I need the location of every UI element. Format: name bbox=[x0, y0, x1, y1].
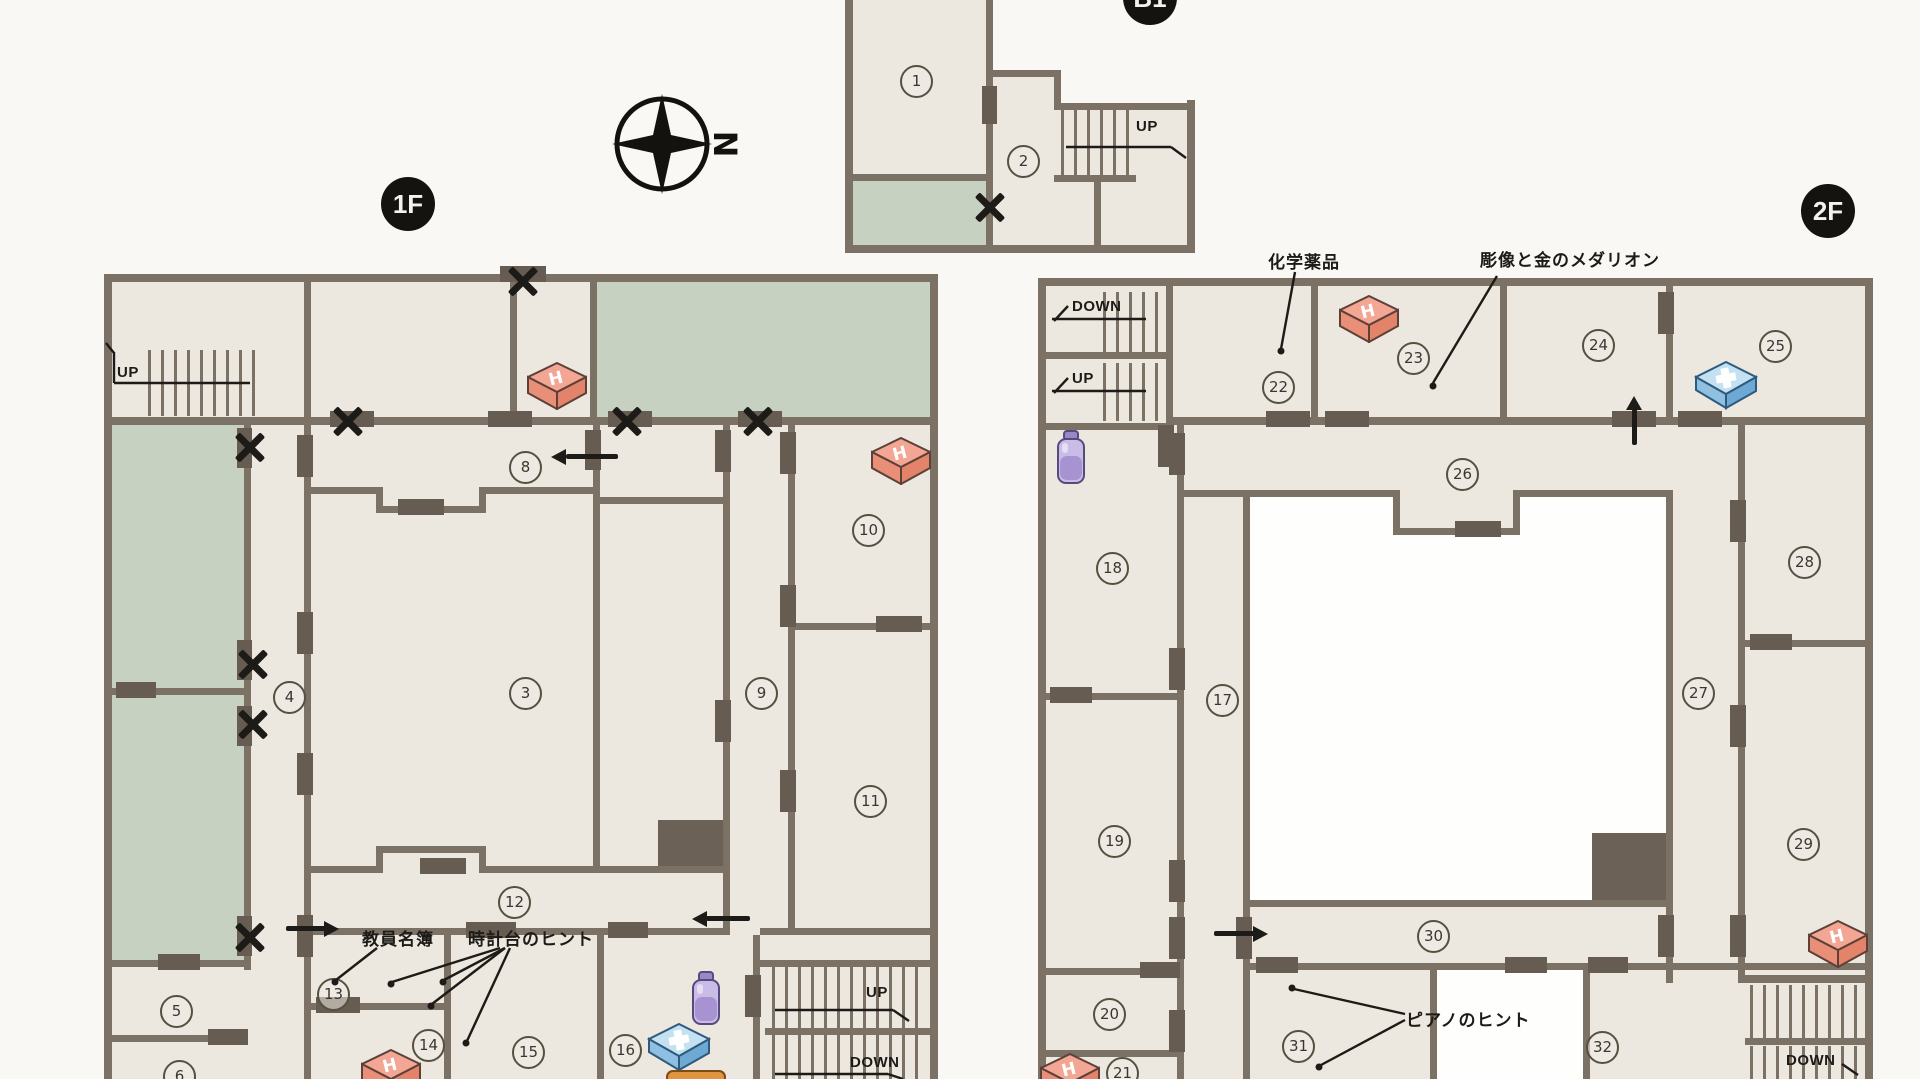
door-marker bbox=[1050, 687, 1092, 703]
arrow-shaft bbox=[706, 916, 750, 921]
door-marker bbox=[715, 430, 731, 472]
blocked-door-x-icon bbox=[741, 404, 775, 438]
door-marker bbox=[297, 435, 313, 477]
room-number-19: 19 bbox=[1098, 825, 1131, 858]
arrow-up-icon bbox=[1626, 396, 1642, 410]
wall bbox=[1054, 103, 1195, 110]
room-number-32: 32 bbox=[1586, 1031, 1619, 1064]
item-box-h-icon: H bbox=[1808, 920, 1868, 968]
piano-hint-label: ピアノのヒント bbox=[1406, 1006, 1530, 1031]
wall bbox=[723, 417, 730, 935]
wall bbox=[479, 846, 486, 873]
door-marker bbox=[1256, 957, 1298, 973]
arrow-shaft bbox=[566, 454, 618, 459]
item-box-h-icon: H bbox=[527, 362, 587, 410]
compass-north-label: N bbox=[705, 124, 745, 164]
door-marker bbox=[780, 432, 796, 474]
room-number-4: 4 bbox=[273, 681, 306, 714]
arrow-shaft bbox=[1214, 931, 1256, 936]
wall bbox=[311, 866, 383, 873]
wall bbox=[597, 935, 604, 1079]
stair-down-label: DOWN bbox=[1786, 1052, 1836, 1069]
floor-badge-1f: 1F bbox=[381, 177, 435, 231]
floor-badge-b1: B1 bbox=[1123, 0, 1177, 25]
wall bbox=[1046, 423, 1173, 430]
door-marker bbox=[1169, 433, 1185, 475]
wall bbox=[1038, 278, 1873, 286]
staircase bbox=[1750, 985, 1862, 1038]
wall bbox=[760, 960, 930, 967]
wall bbox=[1180, 490, 1400, 497]
room-number-31: 31 bbox=[1282, 1030, 1315, 1063]
green-area bbox=[112, 425, 244, 688]
wall bbox=[1583, 970, 1590, 1079]
arrow-left-icon bbox=[551, 449, 566, 465]
blocked-door-x-icon bbox=[973, 190, 1007, 224]
staircase bbox=[772, 1035, 926, 1079]
door-marker bbox=[608, 922, 648, 938]
wall bbox=[1038, 278, 1046, 1079]
chemicals-label: 化学薬品 bbox=[1268, 248, 1340, 273]
wall bbox=[760, 928, 930, 935]
room-number-29: 29 bbox=[1787, 828, 1820, 861]
stair-up-label: UP bbox=[866, 984, 888, 1001]
room-number-16: 16 bbox=[609, 1034, 642, 1067]
door-marker bbox=[208, 1029, 248, 1045]
item-box-h-icon: H bbox=[1339, 295, 1399, 343]
door-marker bbox=[1236, 917, 1252, 959]
wall bbox=[1513, 490, 1673, 497]
door-marker bbox=[1169, 1010, 1185, 1052]
room-number-3: 3 bbox=[509, 677, 542, 710]
door-marker bbox=[1140, 962, 1180, 978]
room-number-26: 26 bbox=[1446, 458, 1479, 491]
door-marker bbox=[398, 499, 444, 515]
blocked-door-x-icon bbox=[236, 647, 270, 681]
door-marker bbox=[297, 753, 313, 795]
wall bbox=[845, 174, 993, 181]
medicine-bottle-icon bbox=[1056, 430, 1086, 484]
stair-up-label: UP bbox=[1136, 118, 1158, 135]
door-marker bbox=[1169, 860, 1185, 902]
door-marker bbox=[420, 858, 466, 874]
item-box-h-icon: H bbox=[871, 437, 931, 485]
room-number-28: 28 bbox=[1788, 546, 1821, 579]
clock-tower-hint-label: 時計台のヒント bbox=[468, 925, 594, 950]
arrow-right-icon bbox=[324, 921, 339, 937]
door-marker bbox=[488, 411, 532, 427]
item-box-h-icon: H bbox=[361, 1049, 421, 1079]
stair-up-label: UP bbox=[117, 364, 139, 381]
room-number-10: 10 bbox=[852, 514, 885, 547]
room-number-30: 30 bbox=[1417, 920, 1450, 953]
door-marker bbox=[876, 616, 922, 632]
wall bbox=[479, 866, 730, 873]
door-marker bbox=[116, 682, 156, 698]
room-number-22: 22 bbox=[1262, 371, 1295, 404]
wall bbox=[986, 70, 1061, 77]
door-marker bbox=[1169, 917, 1185, 959]
floor-plan-page: 1 2 UP N B1 1F 2F bbox=[0, 0, 1920, 1079]
item-box-h-icon: H bbox=[1040, 1053, 1100, 1079]
staircase bbox=[772, 967, 926, 1028]
wall bbox=[590, 282, 597, 425]
room-number-2: 2 bbox=[1007, 145, 1040, 178]
room-number-27: 27 bbox=[1682, 677, 1715, 710]
wall bbox=[1745, 1038, 1866, 1045]
stair-up-label: UP bbox=[1072, 370, 1094, 387]
room-number-11: 11 bbox=[854, 785, 887, 818]
door-marker bbox=[1266, 411, 1310, 427]
door-marker bbox=[1730, 705, 1746, 747]
room-number-17: 17 bbox=[1206, 684, 1239, 717]
wall bbox=[1738, 975, 1873, 983]
wall bbox=[1243, 900, 1673, 907]
door-marker bbox=[1750, 634, 1792, 650]
door-marker bbox=[1588, 957, 1628, 973]
stair-down-label: DOWN bbox=[850, 1054, 900, 1071]
wall bbox=[1187, 100, 1195, 253]
wall bbox=[304, 282, 311, 425]
staircase bbox=[1103, 363, 1166, 421]
green-area bbox=[112, 695, 244, 960]
green-area bbox=[851, 176, 988, 246]
room-number-18: 18 bbox=[1096, 552, 1129, 585]
door-marker bbox=[1678, 411, 1722, 427]
arrow-left-icon bbox=[692, 911, 707, 927]
blocked-door-x-icon bbox=[331, 404, 365, 438]
orange-item-icon bbox=[666, 1070, 726, 1079]
wall bbox=[479, 487, 600, 494]
wall bbox=[376, 846, 486, 853]
wall bbox=[845, 0, 853, 253]
wall bbox=[376, 846, 383, 873]
door-marker bbox=[745, 975, 761, 1017]
wall bbox=[765, 1028, 930, 1035]
wall bbox=[930, 274, 938, 1079]
wall bbox=[1311, 286, 1318, 425]
floor-badge-2f: 2F bbox=[1801, 184, 1855, 238]
wall bbox=[600, 497, 730, 504]
door-marker bbox=[1658, 292, 1674, 334]
wall bbox=[1094, 175, 1101, 253]
blocked-door-x-icon bbox=[506, 264, 540, 298]
wall bbox=[1243, 490, 1250, 907]
room-number-24: 24 bbox=[1582, 329, 1615, 362]
wall bbox=[593, 425, 600, 873]
room-number-20: 20 bbox=[1093, 998, 1126, 1031]
wall bbox=[1046, 352, 1173, 359]
blocked-door-x-icon bbox=[236, 707, 270, 741]
door-marker bbox=[1730, 500, 1746, 542]
wall bbox=[1666, 490, 1673, 907]
room-number-25: 25 bbox=[1759, 330, 1792, 363]
wall bbox=[1177, 423, 1184, 1079]
room-number-15: 15 bbox=[512, 1036, 545, 1069]
wall bbox=[304, 425, 311, 1079]
medicine-bottle-icon bbox=[691, 971, 721, 1025]
room-number-13: 13 bbox=[317, 978, 350, 1011]
door-marker bbox=[1169, 648, 1185, 690]
first-aid-kit-icon bbox=[1694, 360, 1758, 410]
wall bbox=[845, 245, 1195, 253]
wall bbox=[788, 417, 795, 935]
door-marker bbox=[158, 954, 200, 970]
door-marker bbox=[1658, 915, 1674, 957]
first-aid-kit-icon bbox=[647, 1022, 711, 1072]
wall bbox=[1500, 286, 1507, 425]
room-number-8: 8 bbox=[509, 451, 542, 484]
room-number-12: 12 bbox=[498, 886, 531, 919]
solid-block bbox=[1592, 833, 1666, 900]
blocked-door-x-icon bbox=[233, 920, 267, 954]
wall bbox=[311, 487, 383, 494]
door-marker bbox=[585, 430, 601, 470]
staircase bbox=[1061, 110, 1137, 176]
door-marker bbox=[780, 585, 796, 627]
blocked-door-x-icon bbox=[233, 430, 267, 464]
room-number-5: 5 bbox=[160, 995, 193, 1028]
blocked-door-x-icon bbox=[610, 404, 644, 438]
statue-medallion-label: 彫像と金のメダリオン bbox=[1480, 246, 1660, 271]
arrow-shaft bbox=[1632, 409, 1637, 445]
door-marker bbox=[1325, 411, 1369, 427]
door-marker bbox=[780, 770, 796, 812]
wall bbox=[244, 425, 251, 970]
wall bbox=[1250, 963, 1873, 970]
compass-icon bbox=[606, 88, 718, 200]
green-area bbox=[597, 282, 930, 417]
door-marker bbox=[1730, 915, 1746, 957]
door-marker bbox=[982, 86, 997, 124]
stair-down-label: DOWN bbox=[1072, 298, 1122, 315]
arrow-shaft bbox=[286, 926, 326, 931]
door-marker bbox=[1505, 957, 1547, 973]
wall bbox=[104, 274, 112, 1079]
door-marker bbox=[715, 700, 731, 742]
door-marker bbox=[297, 612, 313, 654]
faculty-roster-label: 教員名簿 bbox=[362, 925, 434, 950]
wall bbox=[510, 282, 517, 425]
room-number-23: 23 bbox=[1397, 342, 1430, 375]
door-marker bbox=[1455, 521, 1501, 537]
room-number-1: 1 bbox=[900, 65, 933, 98]
staircase bbox=[148, 350, 256, 416]
door-marker bbox=[297, 915, 313, 957]
room-number-9: 9 bbox=[745, 677, 778, 710]
